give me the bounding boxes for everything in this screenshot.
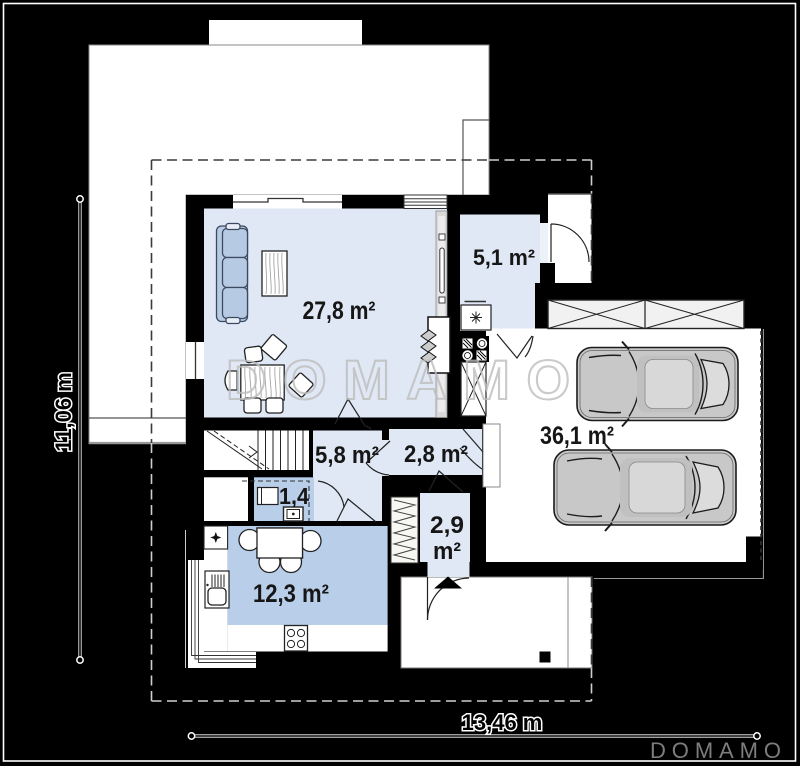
svg-text:2,8 m²: 2,8 m² [404,441,468,468]
svg-text:1,4: 1,4 [279,483,309,509]
svg-text:5,1 m²: 5,1 m² [473,245,535,270]
svg-text:27,8 m²: 27,8 m² [303,297,376,325]
svg-text:11,06 m: 11,06 m [51,372,76,452]
svg-text:5,8 m²: 5,8 m² [315,442,379,469]
svg-text:m²: m² [433,538,461,565]
svg-text:12,3 m²: 12,3 m² [253,580,329,608]
svg-text:2,9: 2,9 [430,512,464,539]
svg-text:36,1 m²: 36,1 m² [540,422,614,450]
svg-text:13,46 m: 13,46 m [462,710,543,735]
